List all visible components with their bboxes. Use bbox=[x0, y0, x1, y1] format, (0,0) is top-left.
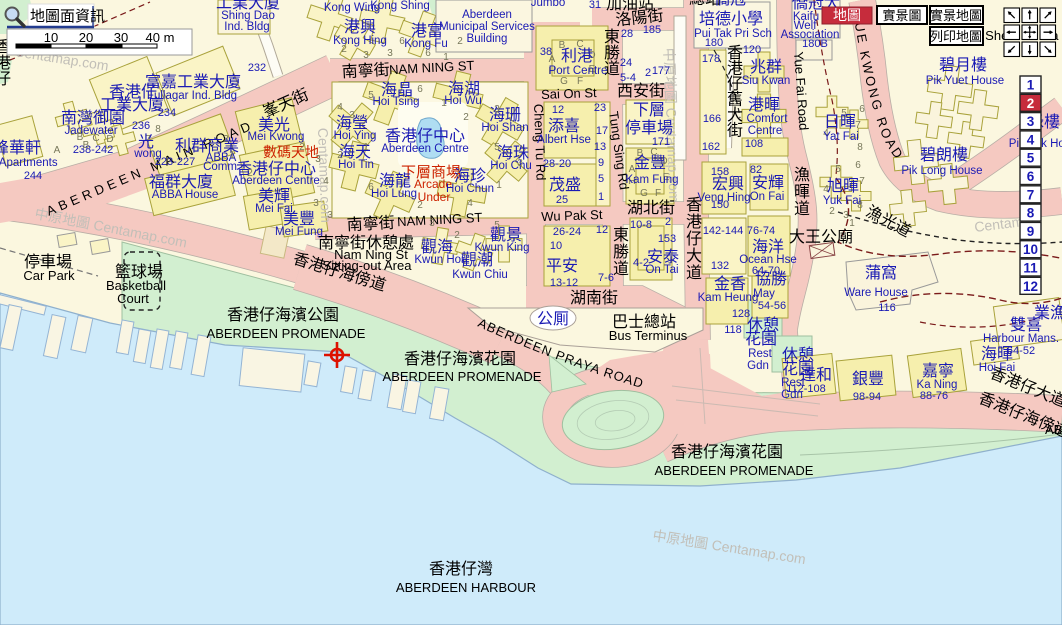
svg-text:1: 1 bbox=[496, 180, 502, 191]
svg-text:G: G bbox=[560, 76, 568, 87]
svg-text:添喜: 添喜 bbox=[548, 117, 580, 135]
svg-text:May: May bbox=[753, 288, 775, 300]
svg-text:12: 12 bbox=[552, 104, 564, 116]
svg-text:4: 4 bbox=[323, 176, 329, 187]
svg-text:Hoi Chun: Hoi Chun bbox=[446, 183, 494, 195]
svg-text:ABERDEEN: ABERDEEN bbox=[1045, 422, 1062, 437]
svg-text:Yuk Fai: Yuk Fai bbox=[823, 195, 861, 207]
svg-text:9: 9 bbox=[1027, 224, 1035, 239]
svg-text:G: G bbox=[640, 188, 648, 199]
svg-text:加油站: 加油站 bbox=[606, 0, 654, 13]
svg-text:Pik Yuet House: Pik Yuet House bbox=[926, 75, 1004, 87]
svg-text:12: 12 bbox=[596, 224, 608, 236]
svg-text:120: 120 bbox=[743, 44, 761, 56]
svg-text:停車場: 停車場 bbox=[625, 119, 673, 137]
svg-text:Centre: Centre bbox=[748, 125, 783, 137]
svg-text:6: 6 bbox=[855, 160, 861, 171]
svg-text:銀豐: 銀豐 bbox=[852, 370, 884, 388]
svg-text:180: 180 bbox=[705, 37, 723, 49]
svg-text:54-56: 54-56 bbox=[758, 300, 786, 312]
svg-text:海暉: 海暉 bbox=[981, 345, 1013, 363]
svg-text:旭暉: 旭暉 bbox=[827, 177, 859, 195]
svg-text:1: 1 bbox=[441, 98, 447, 109]
svg-text:Albert Hse: Albert Hse bbox=[537, 134, 591, 146]
svg-text:Mei Kwong: Mei Kwong bbox=[248, 131, 305, 143]
svg-text:平安: 平安 bbox=[546, 257, 578, 275]
svg-text:3: 3 bbox=[349, 110, 355, 121]
svg-text:10: 10 bbox=[1023, 242, 1038, 257]
svg-text:碧朗樓: 碧朗樓 bbox=[920, 146, 968, 164]
svg-text:F: F bbox=[577, 76, 583, 87]
svg-text:5: 5 bbox=[835, 164, 841, 175]
svg-text:171: 171 bbox=[652, 136, 670, 148]
svg-text:13: 13 bbox=[594, 141, 606, 153]
svg-text:6: 6 bbox=[399, 36, 405, 47]
svg-text:1: 1 bbox=[443, 52, 449, 63]
svg-text:ABBA House: ABBA House bbox=[152, 189, 218, 201]
svg-text:1: 1 bbox=[363, 142, 369, 153]
svg-text:3: 3 bbox=[1027, 114, 1035, 129]
svg-text:Harbour Mans.: Harbour Mans. bbox=[983, 333, 1059, 345]
svg-text:166: 166 bbox=[703, 113, 721, 125]
svg-text:98-94: 98-94 bbox=[853, 391, 881, 403]
svg-text:2: 2 bbox=[645, 67, 651, 79]
svg-text:2: 2 bbox=[463, 112, 469, 123]
svg-text:2: 2 bbox=[829, 206, 835, 217]
svg-text:1: 1 bbox=[849, 218, 855, 229]
svg-text:3: 3 bbox=[313, 198, 319, 209]
svg-text:118: 118 bbox=[724, 324, 742, 336]
svg-text:公厠: 公厠 bbox=[537, 311, 569, 328]
svg-text:2: 2 bbox=[341, 44, 347, 55]
svg-text:88-76: 88-76 bbox=[920, 390, 948, 402]
svg-text:Wu Pak St: Wu Pak St bbox=[541, 207, 603, 224]
svg-text:162: 162 bbox=[702, 141, 720, 153]
svg-text:3: 3 bbox=[387, 48, 393, 59]
svg-text:17: 17 bbox=[596, 125, 608, 137]
svg-text:On Tai: On Tai bbox=[645, 264, 678, 276]
svg-text:150: 150 bbox=[711, 199, 729, 211]
svg-text:協勝: 協勝 bbox=[755, 270, 787, 288]
svg-text:Ware House: Ware House bbox=[844, 287, 908, 299]
svg-text:蒲窩: 蒲窩 bbox=[865, 264, 897, 282]
svg-text:6: 6 bbox=[425, 48, 431, 59]
svg-text:宏興: 宏興 bbox=[712, 175, 744, 193]
svg-text:Gdn: Gdn bbox=[747, 360, 769, 372]
svg-text:238-242: 238-242 bbox=[73, 144, 113, 156]
svg-text:Jumbo: Jumbo bbox=[531, 0, 566, 9]
svg-text:南寧街: 南寧街 bbox=[341, 61, 390, 81]
svg-text:香港仔大道: 香港仔大道 bbox=[686, 196, 702, 282]
svg-text:Mei Fung: Mei Fung bbox=[275, 226, 323, 238]
svg-text:6: 6 bbox=[1027, 169, 1035, 184]
svg-text:116: 116 bbox=[878, 302, 896, 314]
svg-text:Yat Fai: Yat Fai bbox=[823, 131, 859, 143]
svg-text:Sitting-out Area: Sitting-out Area bbox=[323, 258, 413, 273]
svg-text:ABERDEEN HARBOUR: ABERDEEN HARBOUR bbox=[396, 580, 536, 595]
svg-text:兆群: 兆群 bbox=[750, 58, 782, 76]
svg-text:峰華軒: 峰華軒 bbox=[0, 139, 41, 157]
svg-text:Kam Fung: Kam Fung bbox=[625, 174, 678, 186]
svg-text:132: 132 bbox=[711, 260, 729, 272]
svg-text:142-144: 142-144 bbox=[703, 225, 743, 237]
svg-text:7-6: 7-6 bbox=[598, 272, 614, 284]
svg-text:Building: Building bbox=[467, 33, 508, 45]
svg-text:Bus Terminus: Bus Terminus bbox=[609, 328, 688, 343]
svg-text:ABERDEEN PROMENADE: ABERDEEN PROMENADE bbox=[207, 326, 366, 341]
svg-text:漁暉道: 漁暉道 bbox=[794, 166, 810, 218]
svg-text:180B: 180B bbox=[802, 38, 828, 50]
svg-text:11: 11 bbox=[1023, 261, 1038, 276]
svg-text:Aberdeen Centre: Aberdeen Centre bbox=[232, 175, 320, 187]
svg-text:地圖面資訊: 地圖面資訊 bbox=[30, 8, 105, 25]
svg-text:4: 4 bbox=[337, 102, 343, 113]
svg-text:2: 2 bbox=[665, 216, 671, 228]
svg-text:日暉: 日暉 bbox=[824, 114, 856, 131]
svg-text:雙喜: 雙喜 bbox=[1010, 316, 1042, 334]
svg-text:8: 8 bbox=[155, 124, 161, 135]
svg-text:23: 23 bbox=[594, 102, 606, 114]
svg-text:1: 1 bbox=[1027, 78, 1035, 93]
svg-text:26-24: 26-24 bbox=[553, 226, 581, 238]
svg-text:2: 2 bbox=[454, 230, 460, 241]
svg-text:3: 3 bbox=[517, 158, 523, 169]
svg-text:Kong Shing: Kong Shing bbox=[370, 0, 429, 12]
svg-text:8: 8 bbox=[857, 142, 863, 153]
svg-text:利港: 利港 bbox=[561, 47, 593, 65]
svg-text:Aberdeen: Aberdeen bbox=[462, 9, 512, 21]
svg-text:244: 244 bbox=[24, 170, 42, 182]
svg-text:F: F bbox=[655, 188, 661, 199]
svg-text:香港仔海濱公園: 香港仔海濱公園 bbox=[227, 306, 339, 324]
svg-text:ABERDEEN PROMENADE: ABERDEEN PROMENADE bbox=[383, 369, 542, 384]
svg-text:2: 2 bbox=[247, 168, 253, 179]
svg-text:Aberdeen Centre: Aberdeen Centre bbox=[381, 143, 469, 155]
svg-text:177: 177 bbox=[652, 65, 670, 77]
svg-text:234: 234 bbox=[158, 107, 176, 119]
svg-text:7: 7 bbox=[859, 176, 865, 187]
svg-text:Kwun Chiu: Kwun Chiu bbox=[452, 269, 508, 281]
svg-text:3: 3 bbox=[315, 154, 321, 165]
svg-text:Pik Long House: Pik Long House bbox=[901, 165, 982, 177]
svg-text:2: 2 bbox=[337, 150, 343, 161]
svg-text:8: 8 bbox=[1027, 206, 1035, 221]
svg-text:On Fai: On Fai bbox=[750, 191, 785, 203]
svg-text:76-74: 76-74 bbox=[747, 225, 775, 237]
svg-text:7: 7 bbox=[855, 120, 861, 131]
svg-text:Ind. Bldg: Ind. Bldg bbox=[224, 21, 269, 33]
svg-text:112-108: 112-108 bbox=[786, 383, 826, 395]
svg-text:Kwun King: Kwun King bbox=[475, 242, 530, 254]
svg-text:13-12: 13-12 bbox=[550, 277, 578, 289]
svg-text:Car Park: Car Park bbox=[23, 268, 75, 283]
svg-text:Hoi Tsing: Hoi Tsing bbox=[372, 96, 419, 108]
svg-text:B: B bbox=[83, 140, 90, 151]
svg-text:富嘉工業大廈: 富嘉工業大廈 bbox=[145, 73, 241, 91]
svg-text:大王公廟: 大王公廟 bbox=[789, 228, 853, 246]
svg-text:Sai On St: Sai On St bbox=[541, 85, 598, 102]
svg-text:培德小學: 培德小學 bbox=[699, 10, 763, 28]
svg-text:花園: 花園 bbox=[745, 330, 777, 348]
svg-text:東勝道: 東勝道 bbox=[613, 226, 629, 278]
svg-text:金豐: 金豐 bbox=[634, 154, 666, 172]
svg-text:3: 3 bbox=[327, 210, 333, 221]
svg-text:實景圖: 實景圖 bbox=[882, 8, 921, 23]
svg-text:Court: Court bbox=[117, 291, 149, 306]
svg-text:1: 1 bbox=[229, 150, 235, 161]
svg-text:108: 108 bbox=[745, 138, 763, 150]
svg-text:5: 5 bbox=[598, 173, 604, 185]
svg-text:C: C bbox=[92, 133, 99, 144]
svg-text:5-4: 5-4 bbox=[620, 72, 636, 84]
svg-text:40 m: 40 m bbox=[146, 30, 175, 45]
svg-text:Hoi Tin: Hoi Tin bbox=[338, 159, 374, 171]
svg-text:2: 2 bbox=[299, 142, 305, 153]
svg-text:Siu Kwan: Siu Kwan bbox=[742, 75, 791, 87]
svg-text:25: 25 bbox=[556, 194, 568, 206]
svg-text:湖南街: 湖南街 bbox=[570, 289, 618, 307]
svg-text:Fullagar Ind. Bldg: Fullagar Ind. Bldg bbox=[147, 90, 237, 102]
svg-text:數碼天地: 數碼天地 bbox=[263, 144, 319, 160]
svg-text:碧月樓: 碧月樓 bbox=[939, 56, 987, 74]
svg-text:達和: 達和 bbox=[800, 366, 832, 384]
svg-text:2: 2 bbox=[417, 200, 423, 211]
svg-text:28: 28 bbox=[621, 28, 633, 40]
svg-text:安輝: 安輝 bbox=[752, 174, 784, 192]
svg-text:Municipal Services: Municipal Services bbox=[439, 21, 535, 33]
svg-text:10-8: 10-8 bbox=[630, 219, 652, 231]
svg-text:28-20: 28-20 bbox=[543, 158, 571, 170]
svg-text:10: 10 bbox=[550, 240, 562, 252]
svg-text:A: A bbox=[54, 145, 61, 156]
svg-text:185: 185 bbox=[643, 24, 661, 36]
svg-text:嘉寧: 嘉寧 bbox=[922, 362, 954, 380]
svg-text:香港仔海濱花園: 香港仔海濱花園 bbox=[671, 443, 783, 461]
svg-text:港暉: 港暉 bbox=[748, 96, 780, 114]
svg-text:4: 4 bbox=[1027, 132, 1035, 147]
svg-text:6: 6 bbox=[368, 182, 374, 193]
svg-text:Hoi Fai: Hoi Fai bbox=[979, 362, 1015, 374]
svg-text:湖北街: 湖北街 bbox=[627, 199, 675, 217]
svg-text:2: 2 bbox=[1027, 96, 1035, 111]
svg-text:香港仔海濱花園: 香港仔海濱花園 bbox=[404, 350, 516, 368]
svg-text:6: 6 bbox=[859, 104, 865, 115]
svg-text:9: 9 bbox=[598, 157, 604, 169]
svg-text:30: 30 bbox=[114, 30, 128, 45]
svg-text:236: 236 bbox=[132, 120, 150, 132]
svg-text:3: 3 bbox=[429, 218, 435, 229]
svg-text:2: 2 bbox=[223, 134, 229, 145]
svg-text:地圖: 地圖 bbox=[833, 7, 861, 23]
svg-text:7: 7 bbox=[1027, 187, 1035, 202]
svg-text:Comfort: Comfort bbox=[747, 113, 789, 125]
svg-text:D: D bbox=[106, 134, 113, 145]
svg-text:西安街: 西安街 bbox=[617, 82, 665, 100]
svg-text:10: 10 bbox=[44, 30, 58, 45]
svg-text:實景地圖: 實景地圖 bbox=[930, 8, 982, 23]
svg-text:Comm: Comm bbox=[203, 161, 237, 173]
svg-text:Rest: Rest bbox=[748, 348, 772, 360]
svg-text:港興: 港興 bbox=[344, 18, 376, 36]
svg-text:24: 24 bbox=[620, 57, 632, 69]
svg-text:38: 38 bbox=[540, 46, 552, 58]
svg-text:232: 232 bbox=[248, 62, 266, 74]
svg-text:僑冠: 僑冠 bbox=[714, 0, 746, 8]
svg-text:下層: 下層 bbox=[633, 102, 665, 119]
svg-text:Hoi Lung: Hoi Lung bbox=[371, 188, 417, 200]
svg-text:1: 1 bbox=[598, 191, 604, 203]
svg-text:香港仔灣: 香港仔灣 bbox=[429, 560, 493, 578]
svg-text:20: 20 bbox=[79, 30, 93, 45]
svg-text:Port Centre: Port Centre bbox=[549, 65, 608, 77]
svg-text:ABERDEEN PROMENADE: ABERDEEN PROMENADE bbox=[655, 463, 814, 478]
svg-text:153: 153 bbox=[658, 233, 676, 245]
svg-text:列印地圖: 列印地圖 bbox=[930, 29, 982, 44]
svg-text:178: 178 bbox=[702, 53, 720, 65]
svg-text:Hoi Shan: Hoi Shan bbox=[481, 122, 528, 134]
svg-text:5: 5 bbox=[1027, 151, 1035, 166]
svg-text:Kam Heung: Kam Heung bbox=[698, 292, 759, 304]
svg-text:31: 31 bbox=[589, 0, 601, 11]
svg-text:香港仔舊大街: 香港仔舊大街 bbox=[727, 44, 743, 140]
svg-text:茂盛: 茂盛 bbox=[549, 176, 581, 194]
svg-text:Hoi Chu: Hoi Chu bbox=[490, 160, 532, 172]
svg-text:12: 12 bbox=[1023, 279, 1038, 294]
svg-text:re Apartments: re Apartments bbox=[0, 157, 58, 169]
svg-text:Hoi Wu: Hoi Wu bbox=[444, 95, 482, 107]
svg-text:4: 4 bbox=[467, 198, 473, 209]
svg-text:金香: 金香 bbox=[714, 275, 746, 293]
svg-text:Kwun Hoi: Kwun Hoi bbox=[414, 254, 463, 266]
svg-text:6: 6 bbox=[417, 84, 423, 95]
svg-text:Hoi Ying: Hoi Ying bbox=[334, 130, 377, 142]
svg-text:5: 5 bbox=[494, 142, 500, 153]
svg-text:2: 2 bbox=[457, 36, 463, 47]
svg-text:5: 5 bbox=[368, 90, 374, 101]
svg-text:wong: wong bbox=[133, 148, 162, 160]
svg-text:3: 3 bbox=[494, 104, 500, 115]
svg-text:南寧街: 南寧街 bbox=[346, 214, 395, 234]
svg-text:3: 3 bbox=[363, 50, 369, 61]
